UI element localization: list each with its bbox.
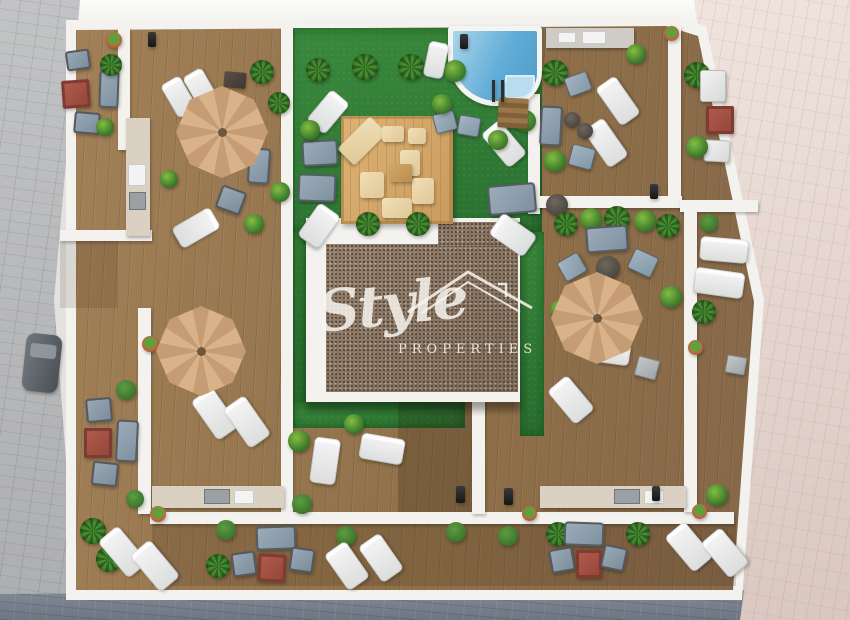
outdoor-kitchen-top bbox=[546, 28, 634, 48]
central-building-roof bbox=[306, 218, 520, 402]
shrub bbox=[488, 130, 508, 150]
courtyard-lawn-right bbox=[520, 232, 544, 436]
palm-plant bbox=[206, 554, 230, 578]
deck-cushion bbox=[360, 172, 384, 198]
topiary-ball bbox=[700, 214, 718, 232]
outdoor-kitchen-topleft bbox=[126, 118, 150, 236]
palm-plant bbox=[306, 58, 330, 82]
flower-pot bbox=[106, 32, 122, 48]
deck-cushion bbox=[408, 128, 426, 144]
flower-pot bbox=[522, 506, 537, 521]
deck-cushion bbox=[382, 198, 412, 218]
palm-plant bbox=[398, 54, 424, 80]
sink bbox=[558, 32, 576, 43]
shrub bbox=[626, 44, 646, 64]
side-table bbox=[725, 354, 748, 375]
coffee-table bbox=[576, 550, 602, 578]
pool-steps bbox=[505, 75, 535, 99]
coffee-table bbox=[706, 106, 734, 134]
courtyard-lawn-left bbox=[293, 232, 306, 428]
palm-plant bbox=[250, 60, 274, 84]
coffee-table bbox=[390, 164, 412, 182]
shrub bbox=[300, 120, 320, 140]
outdoor-sofa bbox=[487, 182, 537, 216]
pool-ladder bbox=[492, 80, 504, 102]
palm-plant bbox=[268, 92, 290, 114]
shrub bbox=[96, 118, 114, 136]
outdoor-sofa bbox=[301, 139, 338, 167]
round-table bbox=[577, 123, 593, 139]
shrub bbox=[660, 286, 682, 308]
shrub bbox=[444, 60, 466, 82]
palm-plant bbox=[100, 54, 122, 76]
wall-topright-divider bbox=[668, 26, 681, 204]
deck-cushion bbox=[382, 126, 404, 142]
shrub bbox=[244, 214, 264, 234]
outdoor-sofa bbox=[539, 105, 563, 146]
topiary-ball bbox=[292, 494, 312, 514]
shrub bbox=[288, 430, 310, 452]
palm-plant bbox=[656, 214, 680, 238]
flower-pot bbox=[688, 340, 703, 355]
topiary-ball bbox=[216, 520, 236, 540]
deck-light-bollard bbox=[650, 184, 658, 199]
outdoor-chair bbox=[230, 550, 257, 577]
wall-right-vertical bbox=[684, 212, 697, 512]
topiary-ball bbox=[126, 490, 144, 508]
flower-pot bbox=[150, 506, 166, 522]
outdoor-sofa bbox=[256, 525, 297, 550]
flower-pot bbox=[664, 26, 679, 41]
outdoor-kitchen-bottom-right bbox=[540, 486, 686, 508]
outdoor-chair bbox=[288, 546, 315, 573]
deck-light-bollard bbox=[148, 32, 156, 47]
shrub bbox=[544, 150, 566, 172]
coffee-table bbox=[61, 79, 91, 109]
outdoor-chair bbox=[548, 546, 576, 574]
deck-light-bollard bbox=[460, 34, 468, 49]
outdoor-chair bbox=[65, 48, 92, 71]
shrub bbox=[270, 182, 290, 202]
coffee-table bbox=[84, 428, 112, 458]
palm-plant bbox=[406, 212, 430, 236]
coffee-table bbox=[257, 553, 286, 582]
deck-light-bollard bbox=[456, 486, 465, 503]
outdoor-chair bbox=[700, 70, 726, 102]
shrub bbox=[686, 136, 708, 158]
topiary-ball bbox=[446, 522, 466, 542]
wall-bottom-long bbox=[150, 512, 734, 524]
deck-light-bollard bbox=[504, 488, 513, 505]
sink bbox=[582, 31, 606, 44]
bbq-grill bbox=[129, 192, 146, 210]
palm-plant bbox=[352, 54, 378, 80]
sun-lounger bbox=[699, 236, 749, 264]
outdoor-chair bbox=[91, 461, 119, 488]
palm-plant bbox=[356, 212, 380, 236]
deck-light-bollard bbox=[652, 486, 660, 501]
shrub bbox=[344, 414, 364, 434]
outdoor-sofa bbox=[585, 225, 629, 254]
topiary-ball bbox=[116, 380, 136, 400]
walkway-building-to-bottom bbox=[472, 400, 485, 514]
flower-pot bbox=[692, 504, 707, 519]
deck-cushion bbox=[412, 178, 434, 204]
outdoor-sofa bbox=[298, 173, 337, 202]
bbq-grill bbox=[234, 490, 254, 504]
outdoor-chair bbox=[456, 114, 481, 138]
outdoor-chair bbox=[600, 544, 628, 572]
palm-plant bbox=[554, 212, 578, 236]
parked-car bbox=[21, 332, 63, 393]
flower-pot bbox=[142, 336, 158, 352]
coffee-table bbox=[223, 71, 246, 89]
outdoor-sofa bbox=[564, 521, 605, 546]
outdoor-sofa bbox=[115, 419, 139, 462]
shrub bbox=[634, 210, 656, 232]
bbq-grill bbox=[128, 164, 146, 186]
topiary-ball bbox=[498, 526, 518, 546]
shrub bbox=[432, 94, 452, 114]
shrub bbox=[706, 484, 728, 506]
walkway-right bbox=[680, 200, 758, 212]
parasol-umbrella bbox=[176, 86, 268, 178]
outdoor-kitchen-bottom-left bbox=[152, 486, 284, 508]
palm-plant bbox=[626, 522, 650, 546]
shrub bbox=[160, 170, 178, 188]
outdoor-chair bbox=[85, 397, 113, 423]
aerial-render-scene: Style PROPERTIES bbox=[0, 0, 850, 620]
bbq-grill bbox=[614, 489, 640, 504]
bbq-grill bbox=[204, 489, 230, 504]
parasol-umbrella bbox=[156, 306, 246, 396]
palm-plant bbox=[692, 300, 716, 324]
gravel-roof-main bbox=[326, 244, 518, 392]
